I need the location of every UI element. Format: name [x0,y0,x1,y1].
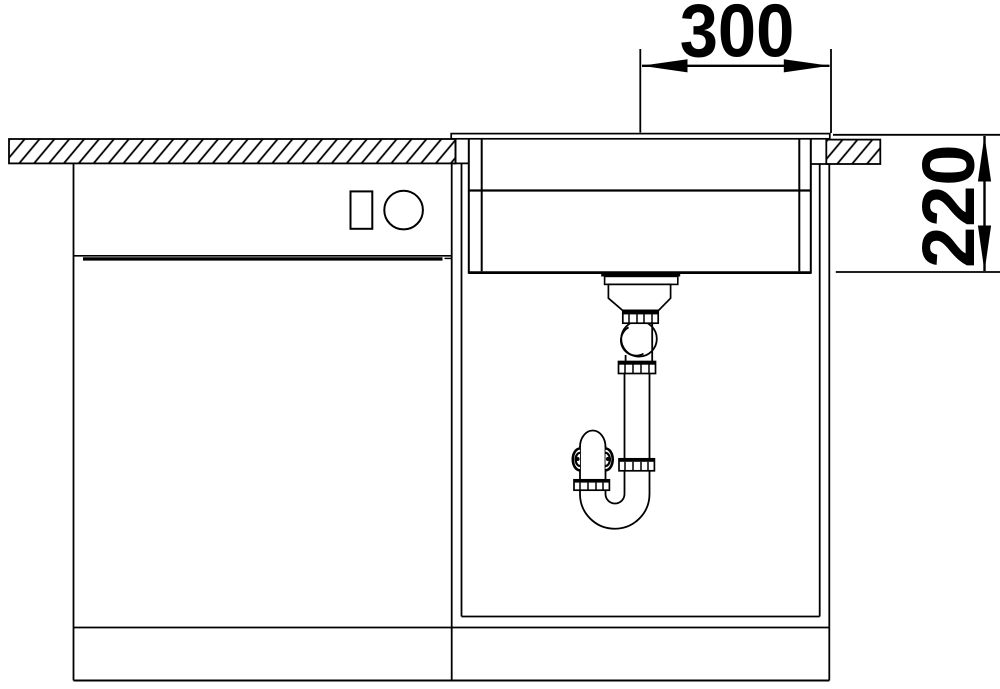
svg-text:220: 220 [907,144,990,267]
svg-text:300: 300 [680,0,795,73]
